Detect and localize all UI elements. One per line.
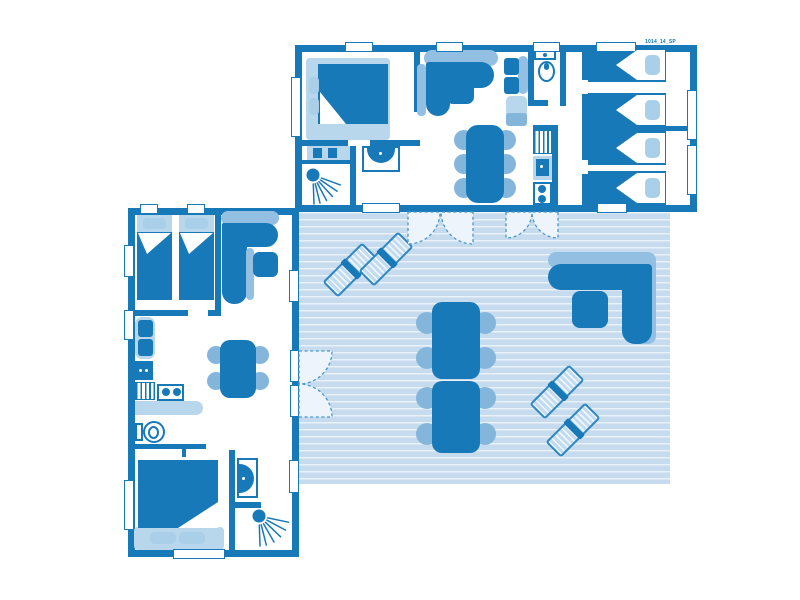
toilet-cistern (135, 423, 143, 441)
wall (215, 215, 221, 315)
wardrobe-shelf (328, 148, 337, 158)
sofa-backrest (417, 64, 426, 116)
wall (350, 146, 356, 205)
flush-button (543, 53, 547, 57)
worktop (135, 401, 203, 415)
coffee-table (446, 76, 474, 104)
window (436, 42, 463, 52)
double-bed (318, 64, 388, 124)
bench-seat (504, 58, 519, 75)
window (140, 204, 158, 214)
bench-seat (138, 320, 153, 337)
fridge-handle (145, 369, 148, 372)
dining-table (466, 125, 504, 203)
pillow (150, 532, 176, 544)
dining-table (220, 340, 256, 398)
pillow (179, 532, 205, 544)
window (345, 42, 373, 52)
bench-seat (504, 77, 519, 94)
wall (135, 444, 206, 449)
window (291, 77, 301, 137)
corner-sofa (222, 223, 247, 304)
floor-plan: 1014_14_SP (0, 0, 800, 600)
coffee-table (253, 252, 278, 277)
kitchen-drainer (135, 382, 155, 400)
window (187, 204, 205, 214)
window (124, 245, 134, 277)
faucet-dot (379, 152, 382, 155)
window (533, 42, 560, 52)
plan-reference-code: 1014_14_SP (645, 39, 676, 45)
toilet-seat (148, 426, 159, 439)
bench-backrest (518, 56, 528, 94)
single-bed (179, 232, 214, 300)
double-bed (138, 460, 218, 528)
faucet-dot (540, 165, 543, 168)
pillow (309, 98, 319, 115)
window (289, 270, 299, 302)
fridge-handle (139, 369, 142, 372)
burner (173, 388, 181, 396)
outdoor-dining-table (432, 381, 480, 453)
burner (538, 185, 546, 193)
window (597, 203, 627, 213)
window (173, 549, 225, 559)
cabinet-front (506, 113, 527, 126)
french-door-leaf (290, 385, 299, 417)
wall (182, 449, 186, 457)
faucet-dot (242, 477, 245, 480)
bench-seat (138, 339, 153, 356)
pillow (645, 178, 660, 198)
window (687, 145, 697, 195)
window (289, 460, 299, 493)
window (124, 310, 134, 340)
wall (135, 310, 188, 316)
pillow (309, 77, 319, 94)
wall (208, 310, 221, 316)
french-door-leaf (290, 350, 299, 382)
pillow (185, 218, 208, 229)
wall (302, 160, 350, 164)
wall (229, 502, 261, 508)
wall (552, 125, 558, 212)
window (124, 480, 134, 530)
single-bed (137, 232, 172, 300)
burner (538, 195, 546, 203)
outdoor-coffee-table (572, 291, 608, 328)
pillow (143, 218, 166, 229)
wall (229, 450, 235, 550)
burner (162, 388, 170, 396)
fridge (135, 361, 153, 380)
window (687, 90, 697, 140)
pillow (645, 100, 660, 120)
window (362, 203, 400, 213)
kitchen-drainer (533, 130, 552, 154)
toilet-hinge (544, 63, 549, 70)
wall (560, 52, 566, 106)
pillow (645, 55, 660, 75)
pillow (645, 138, 660, 158)
window (596, 42, 636, 52)
wardrobe-shelf (313, 148, 322, 158)
wall (528, 100, 548, 106)
outdoor-dining-table (432, 302, 480, 379)
outdoor-corner-sofa (622, 264, 652, 344)
